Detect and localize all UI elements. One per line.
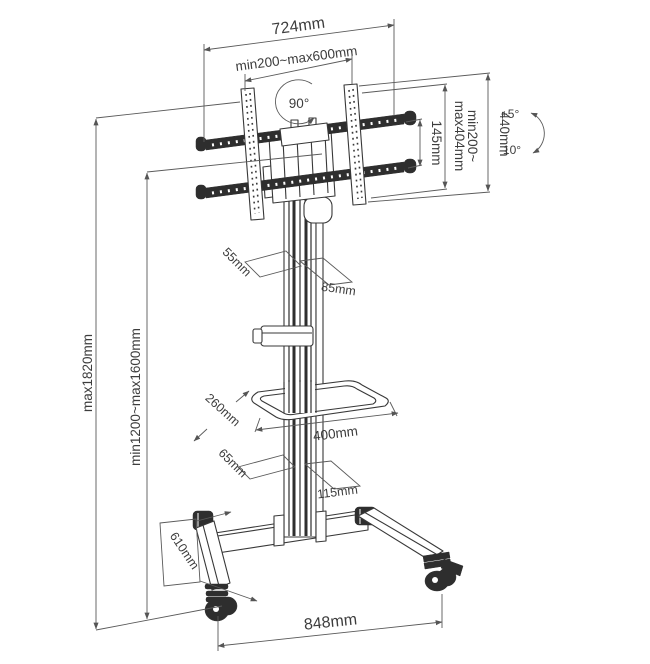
label-vesa-width-range: min200~max600mm bbox=[235, 43, 359, 74]
label-tilt-up: +5° bbox=[501, 107, 520, 121]
label-lower-column-depth: 65mm bbox=[216, 446, 250, 480]
label-column-depth: 55mm bbox=[220, 245, 254, 279]
label-overall-height: max1820mm bbox=[80, 334, 95, 412]
label-crossbar-spacing: 145mm bbox=[429, 120, 444, 165]
base-assembly bbox=[193, 507, 463, 621]
vesa-rail-right bbox=[344, 84, 366, 205]
label-base-width: 848mm bbox=[303, 611, 358, 633]
label-swivel: 90° bbox=[289, 96, 309, 111]
label-leg-depth: 610mm bbox=[167, 530, 202, 572]
dimension-diagram-page: 724mm min200~max600mm 90° 145mm min200~ … bbox=[0, 0, 650, 664]
label-vesa-height-line2: max404mm bbox=[452, 101, 467, 172]
right-caster bbox=[423, 552, 463, 591]
tv-stand-dimension-diagram: 724mm min200~max600mm 90° 145mm min200~ … bbox=[0, 0, 650, 664]
column-through-shelf bbox=[284, 380, 316, 413]
label-screen-center-height: min1200~max1600mm bbox=[128, 328, 143, 466]
shelf-tray bbox=[252, 381, 389, 420]
left-caster bbox=[205, 584, 237, 621]
height-adjust-collar bbox=[253, 326, 313, 346]
tilt-arc bbox=[531, 113, 544, 153]
cable-hook bbox=[304, 197, 332, 223]
label-tilt-down: -10° bbox=[499, 143, 521, 157]
label-shelf-depth: 260mm bbox=[203, 391, 243, 429]
vesa-rail-left bbox=[241, 88, 264, 220]
